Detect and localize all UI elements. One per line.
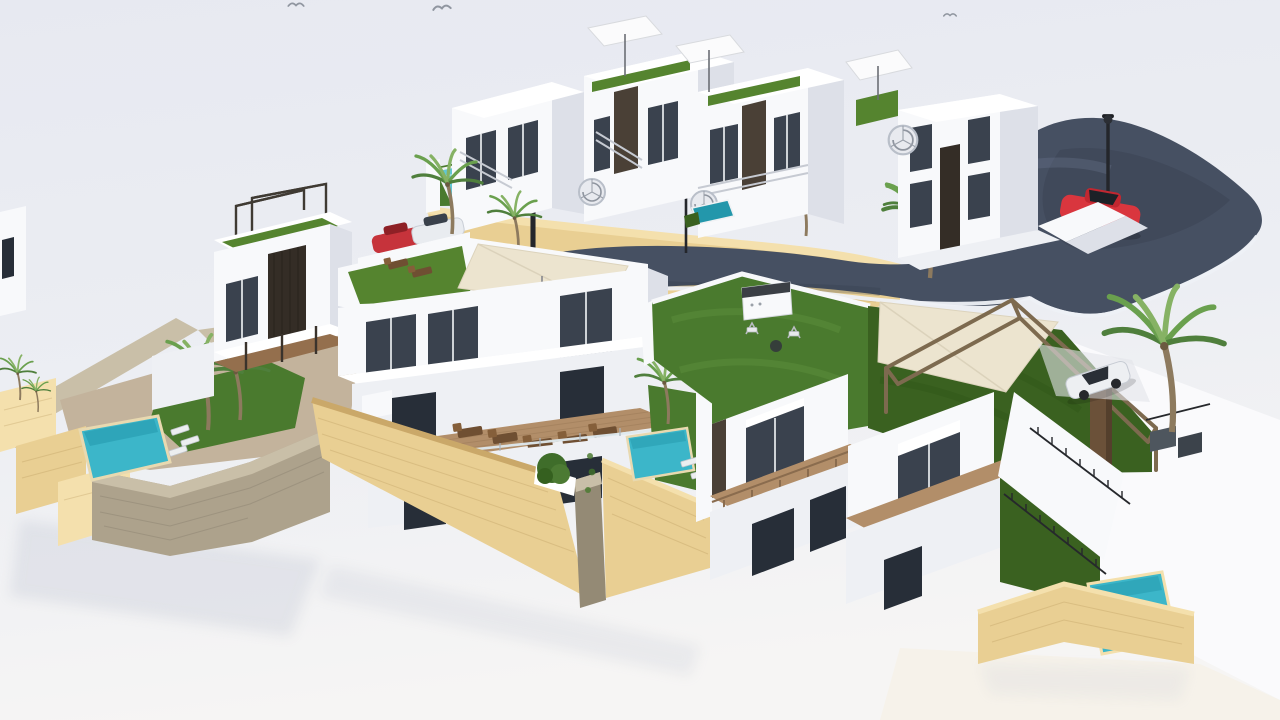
far-left-building [0, 206, 26, 316]
fire-table [770, 340, 782, 352]
spiral-staircase [579, 179, 605, 205]
spiral-staircase [889, 126, 918, 155]
bbq-station [742, 282, 792, 320]
architectural-render [0, 0, 1280, 720]
